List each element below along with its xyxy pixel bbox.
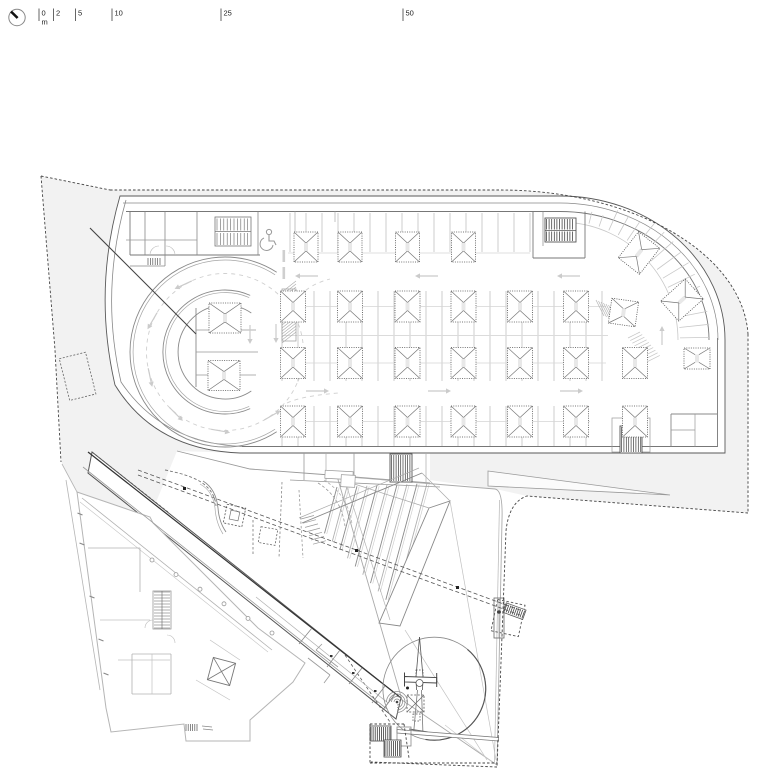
svg-text:50: 50 (406, 9, 414, 18)
svg-text:5: 5 (78, 9, 82, 18)
svg-text:2: 2 (56, 9, 60, 18)
svg-text:10: 10 (115, 9, 123, 18)
svg-text:m: m (42, 18, 48, 27)
svg-text:0: 0 (42, 9, 46, 18)
svg-text:25: 25 (224, 9, 232, 18)
